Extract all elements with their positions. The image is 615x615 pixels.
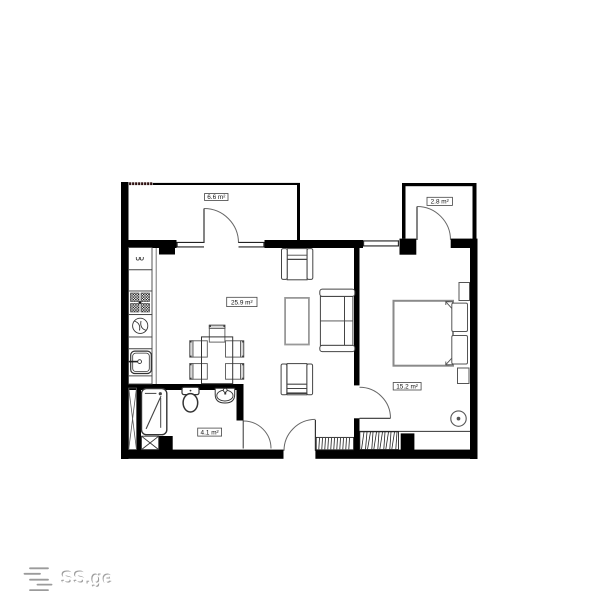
svg-text:2.8 m²: 2.8 m² [431,199,449,206]
svg-text:4.1 m²: 4.1 m² [201,430,219,437]
svg-text:25.9 m²: 25.9 m² [231,300,253,307]
svg-text:15.2 m²: 15.2 m² [396,384,418,391]
svg-text:6.6 m²: 6.6 m² [207,194,225,201]
svg-text:SS.ge: SS.ge [62,568,114,589]
